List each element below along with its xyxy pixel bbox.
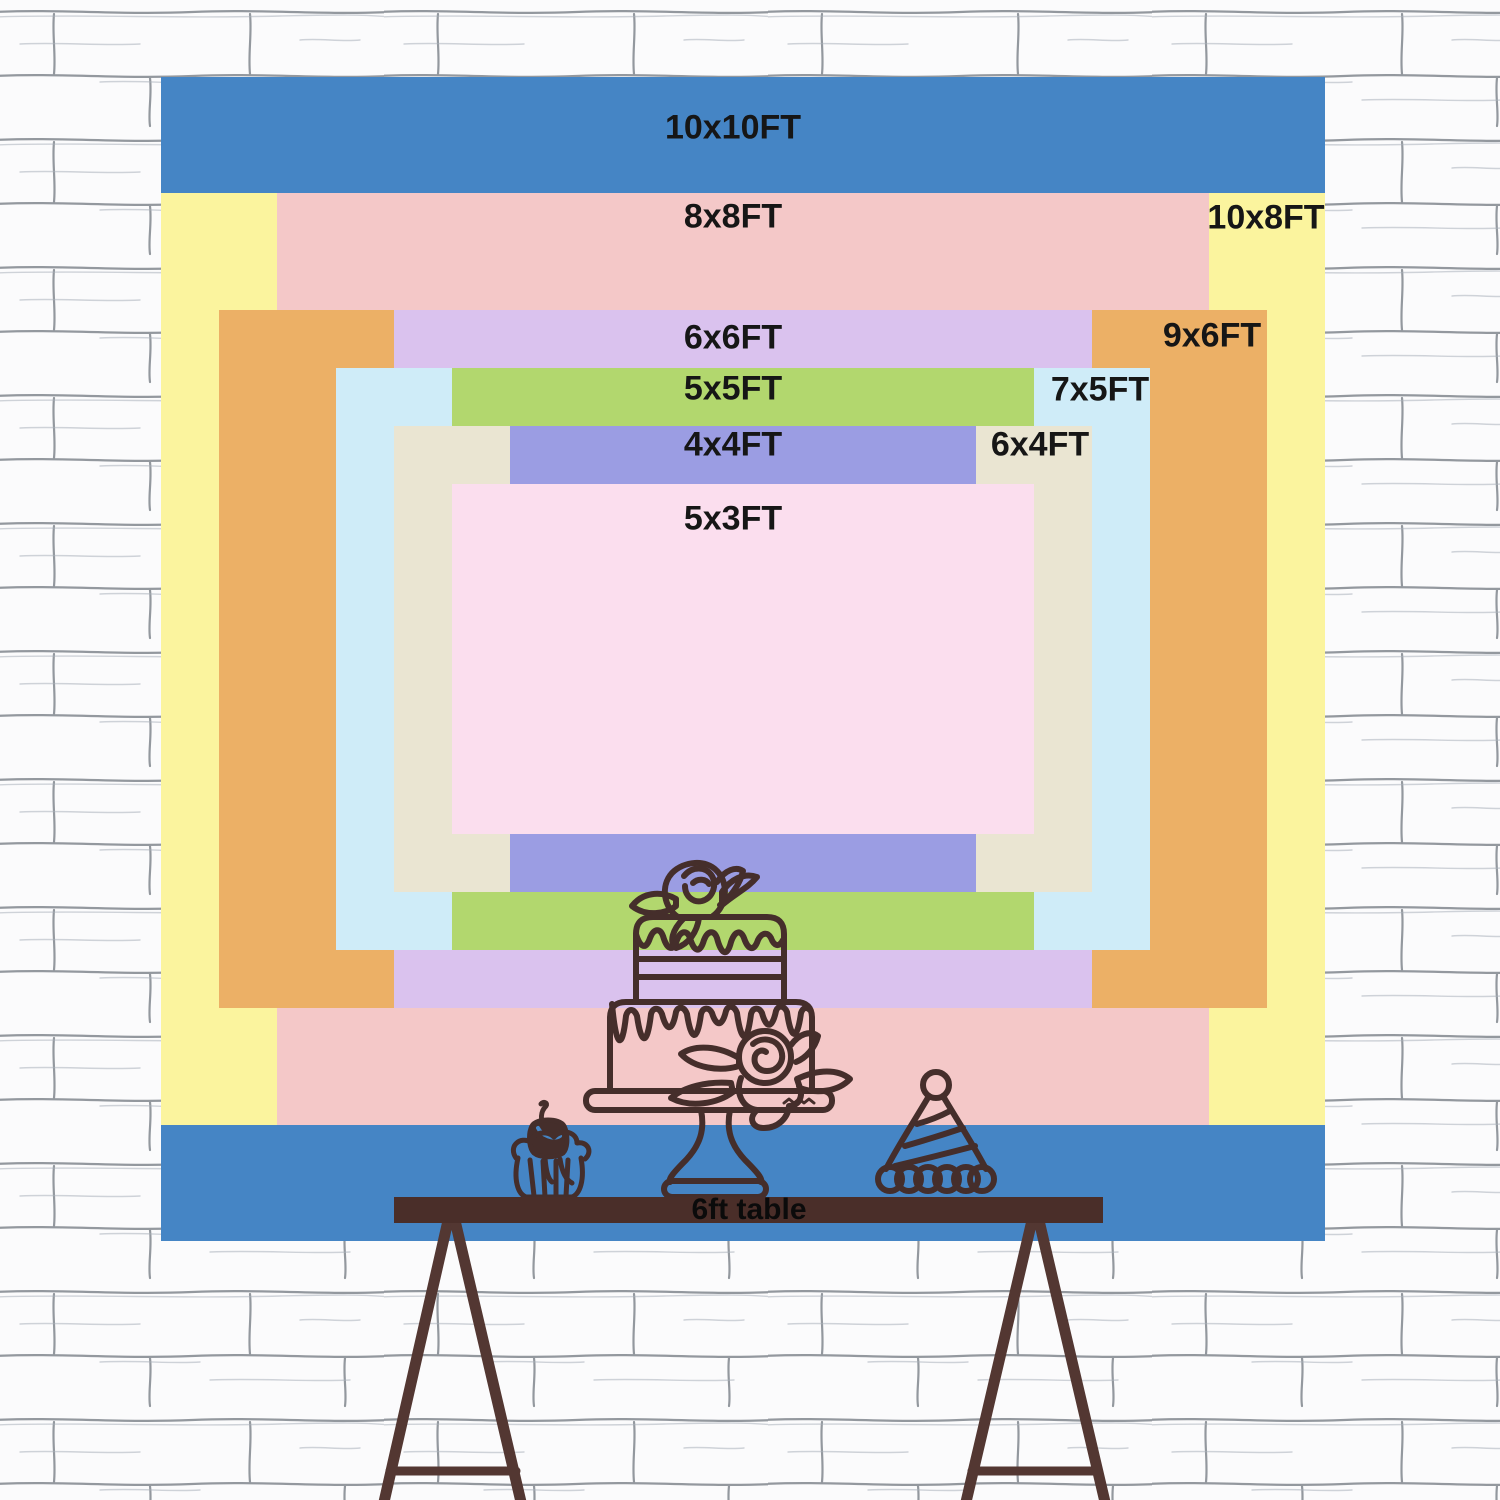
backdrop-size-chart: 10x10FT10x8FT8x8FT9x6FT6x6FT7x5FT5x5FT6x…	[0, 0, 1500, 1500]
table-label: 6ft table	[691, 1193, 806, 1227]
party-hat-illustration	[878, 1072, 994, 1191]
cake-illustration	[586, 863, 850, 1197]
table-legs	[384, 1212, 1105, 1500]
cupcake-illustration	[513, 1103, 589, 1197]
illustration-layer	[0, 0, 1500, 1500]
